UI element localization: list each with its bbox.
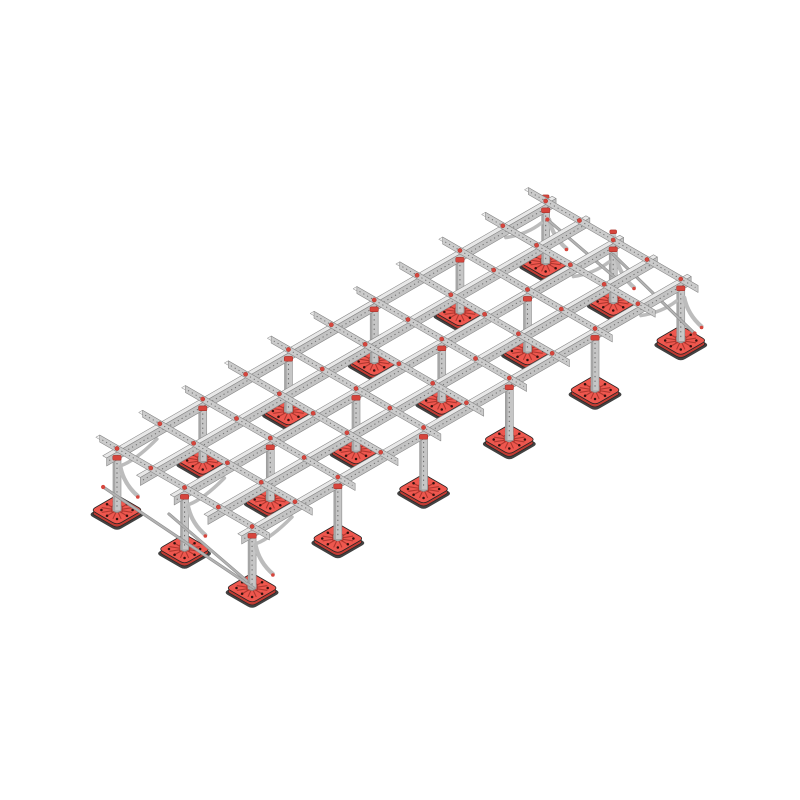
connector-clip	[482, 312, 486, 316]
post-head-clamp	[352, 395, 360, 400]
plate-hole	[183, 557, 186, 560]
plate-hole	[584, 383, 587, 386]
connector-clip	[149, 466, 153, 470]
plate-hole	[297, 416, 300, 419]
plate-hole	[459, 320, 462, 323]
plate-hole	[339, 449, 342, 452]
plate-hole	[596, 300, 599, 303]
connector-clip	[559, 307, 563, 311]
rendering-canvas	[0, 0, 800, 800]
connector-clip	[421, 425, 425, 429]
connector-clip	[182, 485, 186, 489]
plate-hole	[518, 433, 521, 436]
post-head-clamp	[113, 455, 121, 460]
connector-clip	[250, 524, 254, 528]
plate-hole	[347, 543, 350, 546]
post-head-clamp	[523, 296, 531, 301]
connector-clip	[363, 342, 367, 346]
connector-clip	[440, 337, 444, 341]
plate-hole	[412, 482, 415, 485]
plate-hole	[695, 339, 698, 342]
rod-anchor-tip	[545, 217, 549, 221]
plate-hole	[498, 444, 501, 447]
plate-hole	[443, 311, 446, 314]
post-shade-edge	[456, 262, 458, 313]
post-shade-edge	[370, 312, 372, 363]
plate-hole	[173, 554, 176, 557]
connector-clip	[516, 332, 520, 336]
plate-hole	[511, 350, 514, 353]
post-head-clamp	[180, 494, 188, 499]
knee-gusset	[120, 467, 137, 496]
connector-clip	[234, 416, 238, 420]
connector-clip	[354, 386, 358, 390]
connector-clip	[501, 224, 505, 228]
plate-hole	[609, 389, 612, 392]
post-head-clamp	[505, 385, 513, 390]
connector-clip	[577, 218, 581, 222]
post-shade-edge	[542, 213, 544, 264]
post-shade-edge	[523, 301, 525, 352]
connector-clip	[286, 347, 290, 351]
knee-gusset	[256, 545, 273, 574]
plate-hole	[612, 309, 615, 312]
plate-hole	[126, 515, 128, 518]
connector-clip	[464, 401, 468, 405]
plate-hole	[355, 458, 358, 461]
plate-hole	[266, 587, 269, 590]
plate-hole	[327, 532, 330, 535]
plate-hole	[383, 366, 386, 369]
connector-clip	[397, 362, 401, 366]
post-shade-edge	[266, 450, 268, 501]
connector-clip	[225, 461, 229, 465]
connector-clip	[191, 441, 195, 445]
plate-hole	[578, 389, 581, 392]
connector-clip	[345, 431, 349, 435]
connector-clip	[525, 287, 529, 291]
connector-clip	[201, 397, 205, 401]
post-head-clamp	[370, 307, 378, 312]
plate-hole	[373, 369, 376, 372]
rod-anchor-tip	[693, 331, 697, 335]
connector-clip	[449, 293, 453, 297]
plate-hole	[259, 504, 262, 507]
post-head-clamp	[609, 247, 617, 252]
plate-hole	[193, 542, 196, 545]
connector-clip	[216, 505, 220, 509]
connector-clip	[259, 480, 263, 484]
connector-clip	[115, 446, 119, 450]
stub-cap	[610, 230, 617, 234]
plate-hole	[449, 317, 452, 320]
connector-clip	[158, 422, 162, 426]
connector-clip	[568, 263, 572, 267]
post-head-clamp	[541, 208, 549, 213]
plate-hole	[594, 398, 597, 401]
plate-hole	[201, 468, 204, 471]
plate-hole	[670, 334, 673, 337]
post-shade-edge	[438, 351, 440, 402]
post-head-clamp	[456, 257, 464, 262]
post-shade-edge	[113, 460, 115, 511]
connector-clip	[636, 302, 640, 306]
post-head-clamp	[199, 406, 207, 411]
plate-hole	[261, 593, 264, 596]
connector-clip	[320, 367, 324, 371]
plate-hole	[412, 494, 415, 497]
plate-hole	[357, 360, 360, 363]
plate-hole	[432, 494, 435, 497]
plate-hole	[365, 455, 368, 458]
connector-clip	[311, 411, 315, 415]
connector-clip	[544, 199, 548, 203]
plate-hole	[498, 433, 501, 436]
post-shade-edge	[609, 252, 611, 303]
connector-clip	[415, 273, 419, 277]
plate-hole	[235, 587, 238, 590]
plate-hole	[347, 532, 350, 535]
isometric-structure-rendering	[0, 0, 800, 800]
post-head-clamp	[284, 356, 292, 361]
connector-clip	[550, 351, 554, 355]
plate-hole	[327, 543, 330, 546]
plate-hole	[345, 455, 348, 458]
plate-hole	[508, 447, 511, 450]
plate-hole	[622, 306, 625, 309]
plate-hole	[554, 267, 557, 270]
connector-clip	[534, 243, 538, 247]
post-head-clamp	[334, 484, 342, 489]
plate-hole	[604, 383, 607, 386]
post-shade-edge	[352, 400, 354, 451]
connector-clip	[473, 356, 477, 360]
post-head-clamp	[248, 533, 256, 538]
post-shade-edge	[334, 489, 336, 540]
plate-hole	[516, 356, 519, 359]
plate-hole	[100, 509, 103, 512]
plate-hole	[253, 498, 256, 501]
plate-hole	[269, 507, 272, 510]
connector-clip	[388, 406, 392, 410]
plate-hole	[689, 345, 692, 348]
post-head-clamp	[438, 346, 446, 351]
plate-hole	[492, 438, 495, 441]
post-head-clamp	[266, 445, 274, 450]
plate-hole	[192, 465, 195, 468]
connector-clip	[293, 500, 297, 504]
post-head-clamp	[419, 434, 427, 439]
plate-hole	[106, 503, 109, 506]
plate-hole	[106, 515, 109, 518]
plate-hole	[438, 488, 441, 491]
plate-hole	[173, 542, 176, 545]
plate-hole	[279, 504, 282, 507]
plate-hole	[680, 348, 683, 351]
plate-hole	[432, 482, 435, 485]
connector-clip	[336, 475, 340, 479]
plate-hole	[469, 317, 472, 320]
plate-hole	[524, 438, 527, 441]
plate-hole	[321, 537, 324, 540]
post-shade-edge	[420, 439, 422, 490]
plate-hole	[186, 459, 189, 462]
connector-clip	[302, 455, 306, 459]
plate-hole	[211, 465, 214, 468]
plate-hole	[536, 356, 539, 359]
rod-anchor-tip	[101, 485, 105, 489]
post-shade-edge	[284, 361, 286, 412]
plate-hole	[602, 306, 605, 309]
connector-clip	[507, 376, 511, 380]
plate-hole	[544, 270, 547, 273]
plate-hole	[534, 267, 537, 270]
gusset-pin	[700, 326, 704, 330]
post-shade-edge	[591, 340, 593, 391]
connector-clip	[458, 248, 462, 252]
plate-hole	[277, 416, 280, 419]
plate-hole	[352, 537, 355, 540]
plate-hole	[287, 419, 290, 422]
plate-hole	[407, 488, 410, 491]
post-shade-edge	[199, 411, 201, 462]
connector-clip	[268, 436, 272, 440]
gusset-pin	[565, 248, 569, 252]
plate-hole	[689, 334, 692, 337]
gusset-pin	[271, 573, 275, 577]
plate-hole	[261, 581, 264, 584]
connector-clip	[243, 372, 247, 376]
connector-clip	[645, 257, 649, 261]
plate-hole	[422, 497, 425, 500]
plate-hole	[604, 395, 607, 398]
plate-hole	[168, 548, 171, 551]
knee-gusset	[684, 298, 701, 327]
plate-hole	[116, 518, 119, 521]
connector-clip	[679, 277, 683, 281]
plate-hole	[529, 261, 532, 264]
connector-clip	[602, 282, 606, 286]
gusset-pin	[204, 534, 208, 538]
plate-hole	[337, 546, 340, 549]
connector-clip	[277, 392, 281, 396]
gusset-pin	[632, 287, 636, 291]
plate-hole	[518, 444, 521, 447]
plate-hole	[584, 395, 587, 398]
connector-clip	[593, 326, 597, 330]
plate-hole	[241, 593, 244, 596]
plate-hole	[272, 410, 275, 413]
connector-clip	[611, 238, 615, 242]
plate-hole	[441, 408, 444, 411]
connector-clip	[431, 381, 435, 385]
plate-hole	[664, 339, 667, 342]
plate-hole	[431, 405, 434, 408]
post-shade-edge	[248, 538, 250, 589]
post-shade-edge	[505, 390, 507, 441]
gusset-pin	[136, 495, 140, 499]
plate-hole	[670, 345, 673, 348]
plate-hole	[425, 399, 428, 402]
connector-clip	[379, 450, 383, 454]
connector-clip	[492, 268, 496, 272]
post-head-clamp	[591, 335, 599, 340]
connector-clip	[329, 323, 333, 327]
connector-clip	[406, 317, 410, 321]
connector-clip	[372, 298, 376, 302]
plate-hole	[193, 554, 196, 557]
post-head-clamp	[677, 286, 685, 291]
plate-hole	[450, 405, 453, 408]
plate-hole	[363, 366, 366, 369]
plate-hole	[526, 359, 529, 362]
plate-hole	[251, 596, 254, 599]
